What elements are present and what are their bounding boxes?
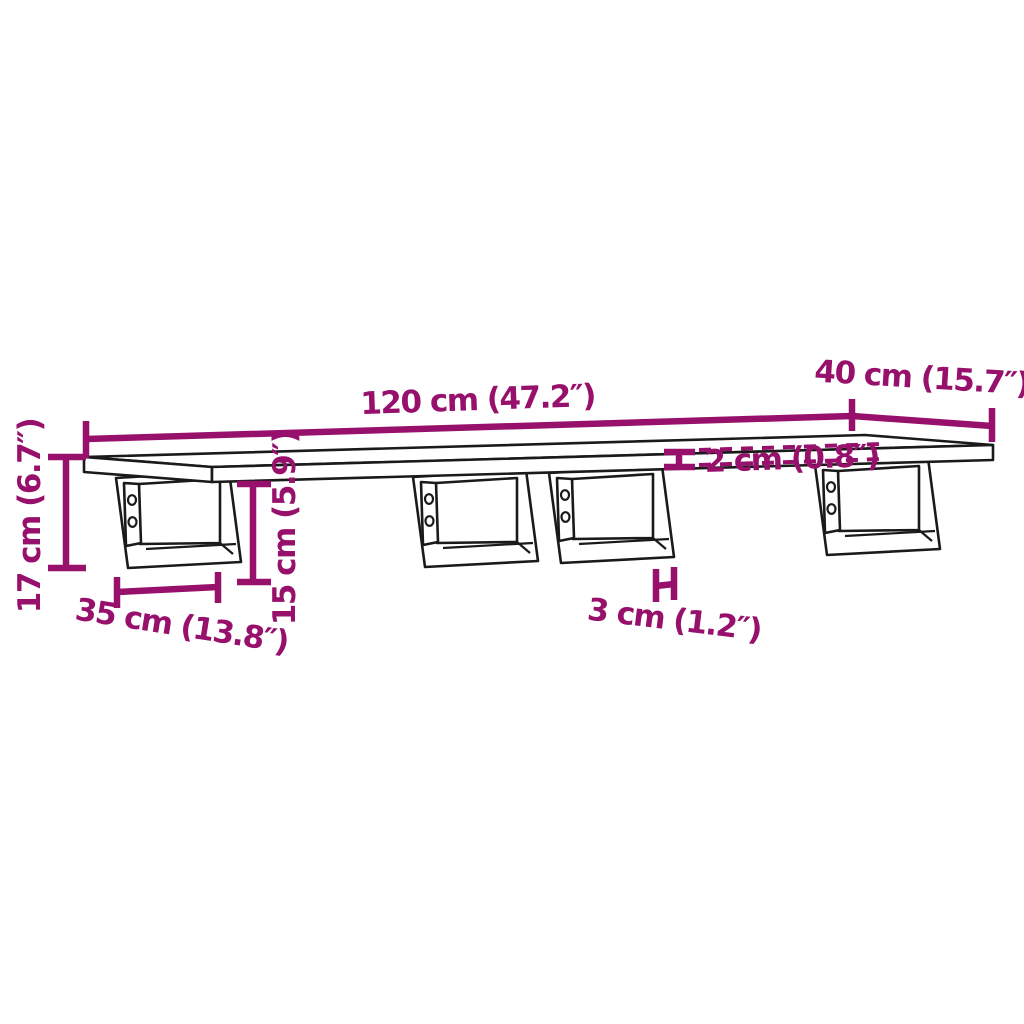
dim-total-height (48, 457, 86, 568)
dim-label-board-thickness: 2 cm (0.8″) (704, 438, 880, 480)
bracket-2 (413, 470, 538, 567)
bracket-1 (116, 471, 241, 568)
dim-bracket-offset (656, 567, 674, 602)
dimension-diagram: 120 cm (47.2″) 40 cm (15.7″) 2 cm (0.8″)… (0, 0, 1024, 1024)
dim-label-bracket-depth: 35 cm (13.8″) (73, 592, 291, 661)
dim-label-total-height: 17 cm (6.7″) (12, 419, 48, 614)
dim-bracket-height (237, 484, 271, 582)
dim-label-bracket-offset: 3 cm (1.2″) (585, 592, 763, 649)
dim-label-length: 120 cm (47.2″) (360, 378, 596, 422)
bracket-3 (549, 466, 674, 563)
dim-label-depth: 40 cm (15.7″) (813, 354, 1024, 403)
diagram-canvas: 120 cm (47.2″) 40 cm (15.7″) 2 cm (0.8″)… (0, 0, 1024, 1024)
dim-label-bracket-height: 15 cm (5.9″) (267, 431, 303, 626)
